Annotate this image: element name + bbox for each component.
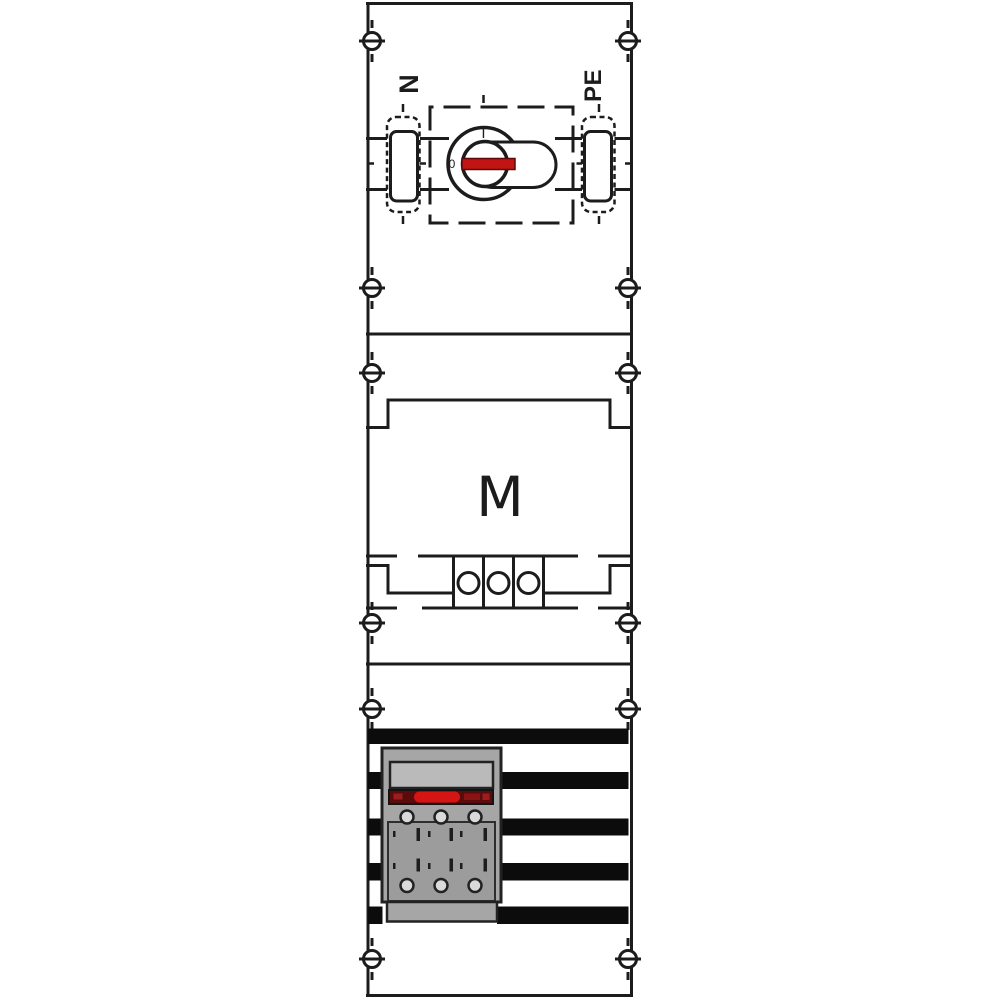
busbar-section [368, 729, 629, 925]
mounting-screw-icon [615, 688, 641, 730]
mounting-screw-icon [615, 20, 641, 62]
switch-handle [462, 159, 515, 170]
mounting-screw-icon [359, 20, 385, 62]
terminal-hole [488, 573, 509, 594]
mounting-screw-icon [615, 267, 641, 309]
busbar-5-stub [368, 907, 383, 925]
meter-plate-outline [366, 400, 633, 428]
switch-section [366, 95, 633, 224]
pe-terminal-block [585, 132, 612, 202]
busbar-1 [368, 729, 629, 745]
device-terminal [469, 811, 482, 824]
switch-off-marker: 0 [445, 156, 459, 171]
device-terminal [401, 879, 414, 892]
switch-on-marker: I [477, 126, 490, 141]
device-terminal [401, 811, 414, 824]
meter-panel-diagram: N PE M 0 I [0, 0, 1000, 1000]
terminal-hole [458, 573, 479, 594]
busbar-5 [497, 907, 629, 925]
neutral-label: N [395, 70, 423, 98]
strip-mark-right-2 [483, 794, 490, 801]
pe-label: PE [582, 63, 605, 108]
device-terminal [435, 879, 448, 892]
device-handle-grip [414, 792, 460, 803]
meter-terminal-assembly [366, 556, 633, 608]
terminal-step-right [544, 566, 634, 594]
device-top-panel [390, 762, 493, 788]
mounting-screw-icon [359, 688, 385, 730]
strip-mark-left [394, 794, 403, 800]
n-terminal-block [391, 132, 418, 202]
device-terminal [435, 811, 448, 824]
switch-fuse-device [382, 748, 501, 922]
terminal-step-left [366, 566, 453, 594]
main-switch [448, 128, 556, 200]
mounting-screw-icon [615, 938, 641, 980]
terminal-hole [518, 573, 539, 594]
device-bottom-flange [387, 902, 497, 922]
mounting-screw-icon [359, 938, 385, 980]
mounting-screw-icon [359, 352, 385, 394]
mounting-screw-icon [615, 352, 641, 394]
device-terminal [469, 879, 482, 892]
meter-label: M [450, 467, 550, 527]
mounting-screw-icon [359, 267, 385, 309]
strip-mark-right [464, 794, 480, 801]
